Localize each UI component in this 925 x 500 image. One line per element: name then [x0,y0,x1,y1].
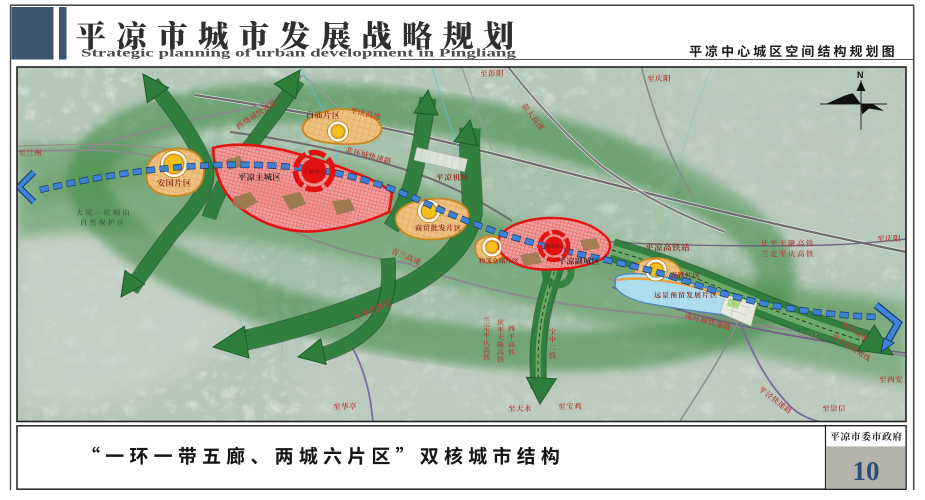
svg-text:Strategic planning of urban de: Strategic planning of urban development … [81,46,516,60]
svg-text:10: 10 [853,456,880,486]
svg-text:N: N [857,70,864,80]
